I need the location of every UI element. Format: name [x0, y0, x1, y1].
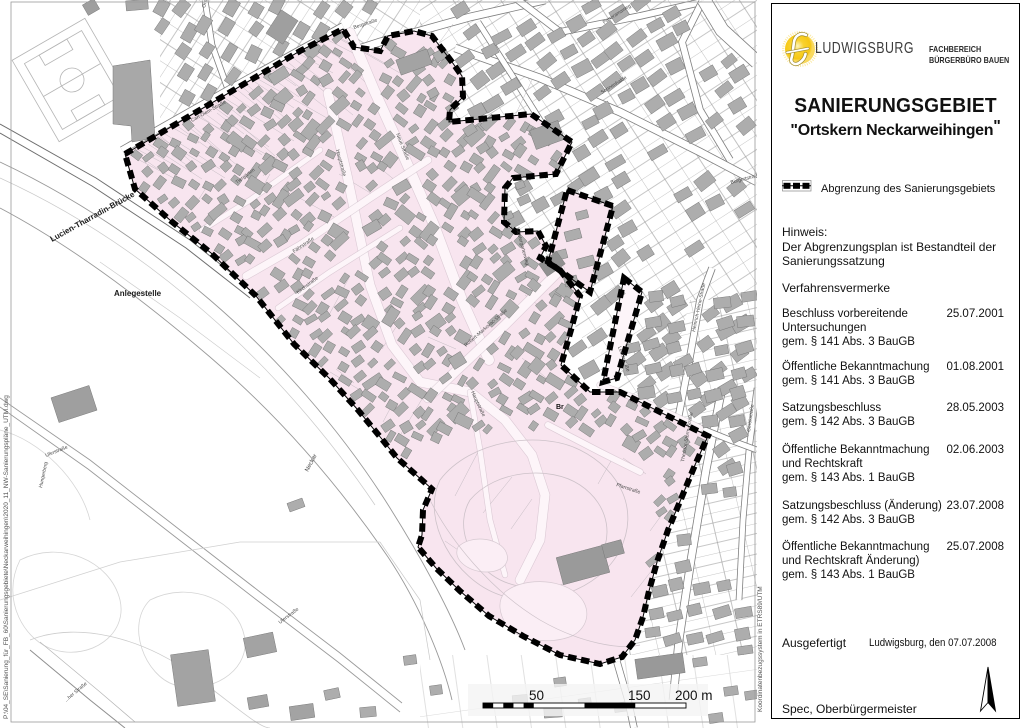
- svg-text:200 m: 200 m: [675, 688, 713, 703]
- svg-text:150: 150: [628, 688, 651, 703]
- svg-text:50: 50: [529, 688, 544, 703]
- svg-text:Br: Br: [556, 404, 564, 411]
- svg-text:Anlegestelle: Anlegestelle: [114, 289, 162, 298]
